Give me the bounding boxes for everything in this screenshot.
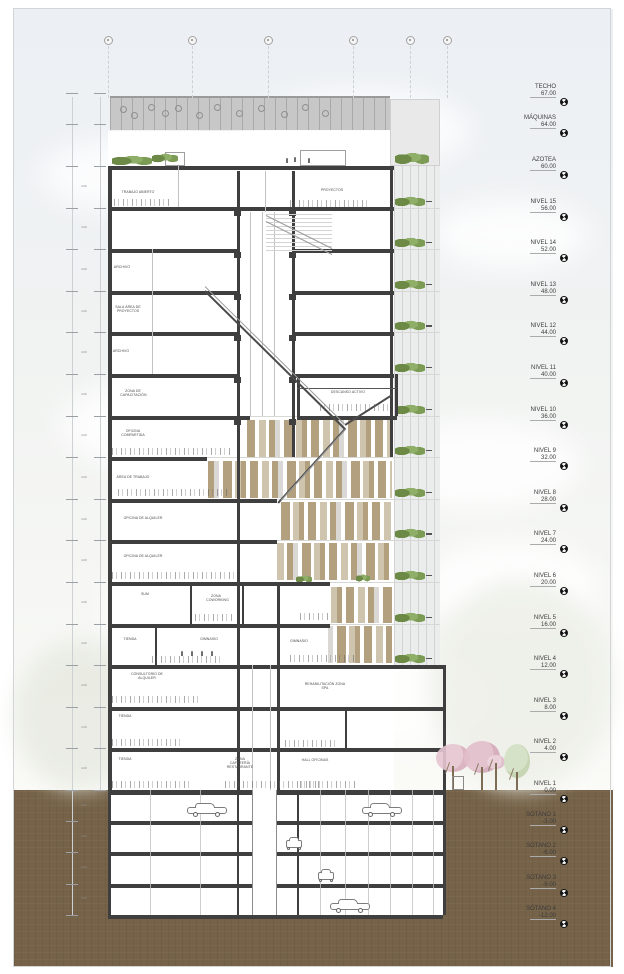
drawing-border [13, 8, 611, 967]
section-drawing: TRABAJO ABIERTOPROYECTOSARCHIVOSALA ÁREA… [0, 0, 624, 974]
